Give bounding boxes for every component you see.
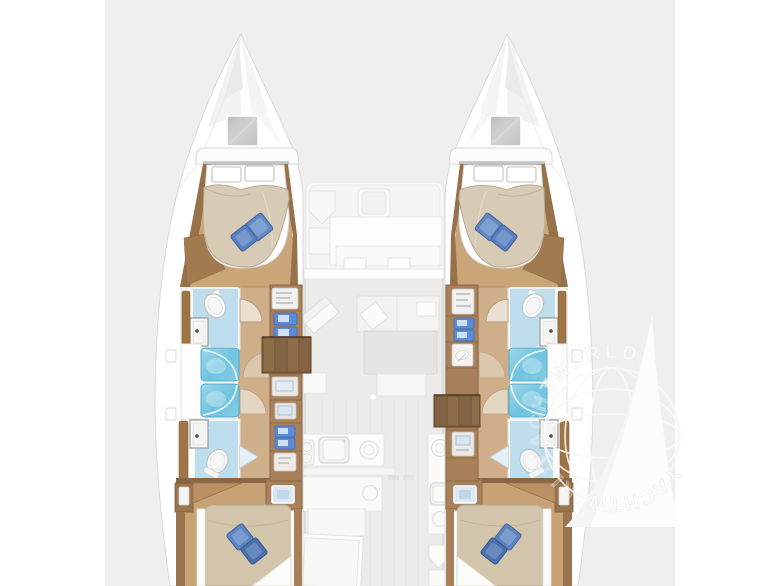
- svg-text:C: C: [526, 414, 549, 430]
- svg-text:T: T: [609, 493, 622, 515]
- svg-text:L: L: [605, 341, 618, 363]
